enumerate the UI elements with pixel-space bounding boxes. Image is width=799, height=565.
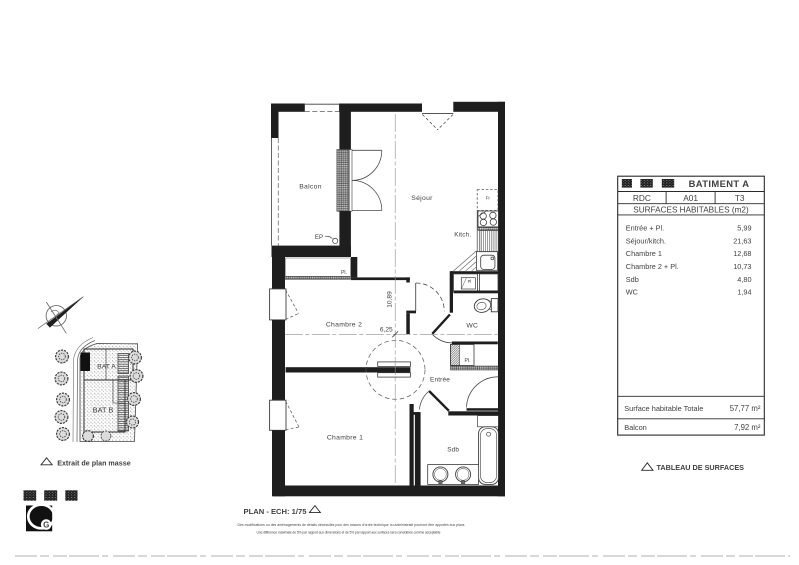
svg-text:57,77 m²: 57,77 m² (730, 404, 761, 413)
svg-text:10,89: 10,89 (386, 291, 393, 308)
svg-text:Fr: Fr (486, 195, 491, 200)
svg-text:5,99: 5,99 (737, 224, 751, 233)
svg-text:10,73: 10,73 (733, 262, 751, 271)
svg-text:Chambre 2: Chambre 2 (326, 322, 362, 329)
svg-text:21,63: 21,63 (733, 236, 751, 245)
svg-text:Sdb: Sdb (626, 275, 639, 284)
svg-text:Une différence maximale de 5%: Une différence maximale de 5% par rappor… (257, 530, 441, 534)
svg-text:BAT B: BAT B (93, 406, 114, 415)
svg-text:Surface habitable Totale: Surface habitable Totale (624, 404, 703, 413)
svg-text:SURFACES HABITABLES (m2): SURFACES HABITABLES (m2) (633, 205, 749, 214)
svg-text:Entrée: Entrée (430, 376, 450, 383)
svg-text:A01: A01 (683, 193, 698, 203)
svg-text:G: G (43, 521, 49, 530)
svg-text:Kitch.: Kitch. (454, 232, 471, 239)
svg-text:Pl.: Pl. (341, 270, 347, 276)
svg-text:Balcon: Balcon (299, 184, 322, 191)
svg-text:7,92 m²: 7,92 m² (734, 423, 761, 432)
svg-text:BATIMENT A: BATIMENT A (689, 178, 750, 189)
svg-text:12,68: 12,68 (733, 249, 751, 258)
svg-text:PLAN - ECH: 1/75: PLAN - ECH: 1/75 (244, 507, 308, 516)
svg-text:Extrait de plan masse: Extrait de plan masse (57, 458, 131, 467)
svg-text:T3: T3 (735, 193, 745, 203)
svg-text:Chambre 2 + Pl.: Chambre 2 + Pl. (626, 262, 679, 271)
svg-text:6,25: 6,25 (380, 327, 393, 334)
svg-text:EP: EP (315, 234, 323, 241)
svg-text:1,94: 1,94 (737, 288, 751, 297)
svg-text:Des modifications ou des aména: Des modifications ou des aménagements de… (238, 523, 465, 527)
svg-text:Chambre 1: Chambre 1 (626, 249, 662, 258)
svg-text:Entrée + Pl.: Entrée + Pl. (626, 224, 664, 233)
svg-text:Pl.: Pl. (464, 358, 470, 364)
svg-text:4,80: 4,80 (737, 275, 751, 284)
svg-text:Sdb: Sdb (447, 446, 459, 453)
svg-text:Séjour: Séjour (411, 195, 433, 202)
svg-text:TABLEAU DE SURFACES: TABLEAU DE SURFACES (657, 463, 745, 472)
svg-text:WC: WC (626, 288, 638, 297)
svg-text:RDC: RDC (633, 193, 651, 203)
svg-text:WC: WC (466, 323, 478, 330)
svg-text:Pl: Pl (468, 279, 472, 284)
svg-text:Balcon: Balcon (624, 423, 647, 432)
svg-text:BAT A: BAT A (97, 364, 116, 371)
svg-text:Chambre 1: Chambre 1 (327, 435, 363, 442)
svg-text:Séjour/kitch.: Séjour/kitch. (626, 236, 666, 245)
